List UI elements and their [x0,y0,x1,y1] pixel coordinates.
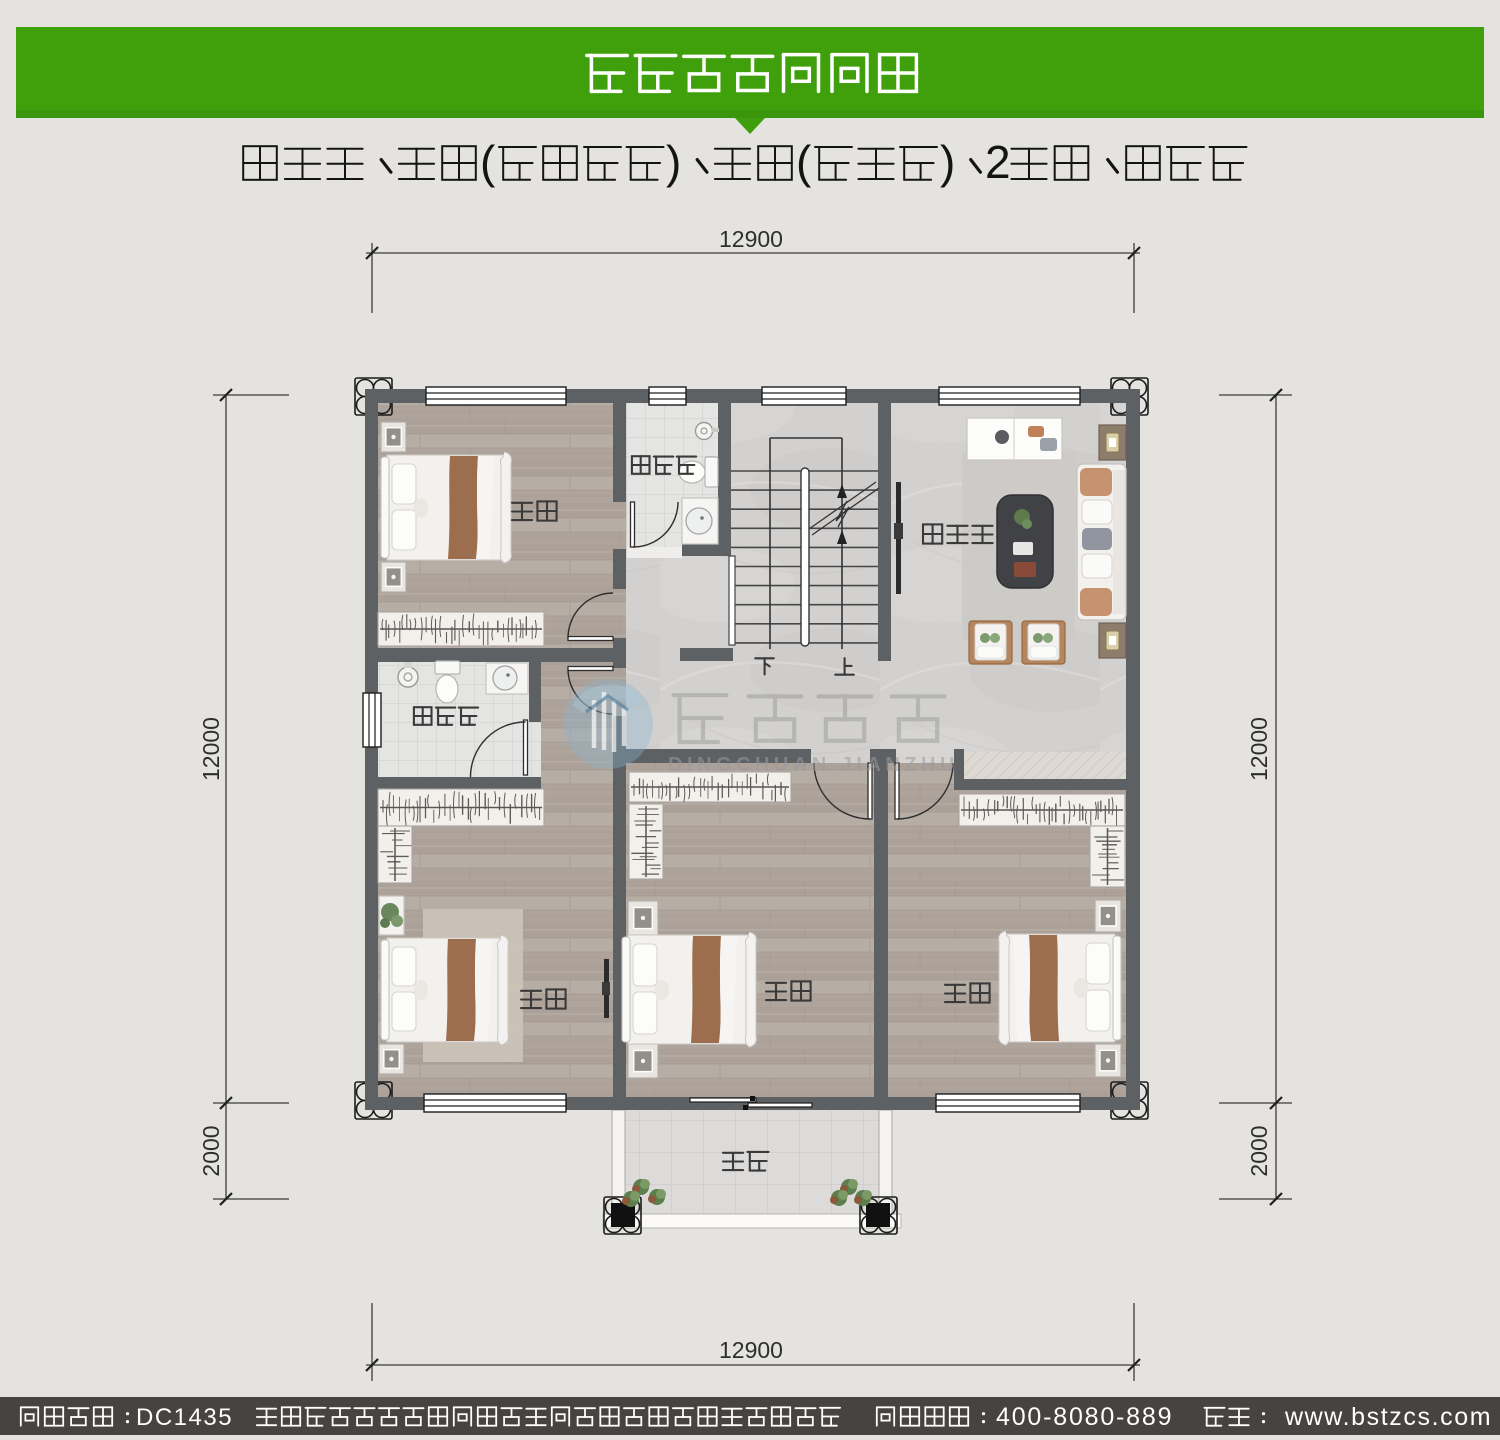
svg-text:www.bstzcs.com: www.bstzcs.com [1284,1403,1492,1431]
svg-text:2000: 2000 [198,1125,224,1176]
svg-text:12000: 12000 [1246,717,1272,781]
svg-text:12900: 12900 [719,226,783,252]
svg-text:): ) [940,136,955,188]
svg-text:2: 2 [985,136,1011,188]
svg-text:DINGCHUAN JIANZHU: DINGCHUAN JIANZHU [668,754,959,776]
svg-text:(: ( [796,136,812,188]
svg-text:DC1435: DC1435 [136,1404,233,1431]
svg-text:12900: 12900 [719,1337,783,1363]
svg-text:(: ( [480,136,496,188]
svg-text:): ) [666,136,681,188]
svg-text:2000: 2000 [1246,1125,1272,1176]
svg-text:400-8080-889: 400-8080-889 [996,1403,1173,1431]
svg-text:12000: 12000 [198,717,224,781]
